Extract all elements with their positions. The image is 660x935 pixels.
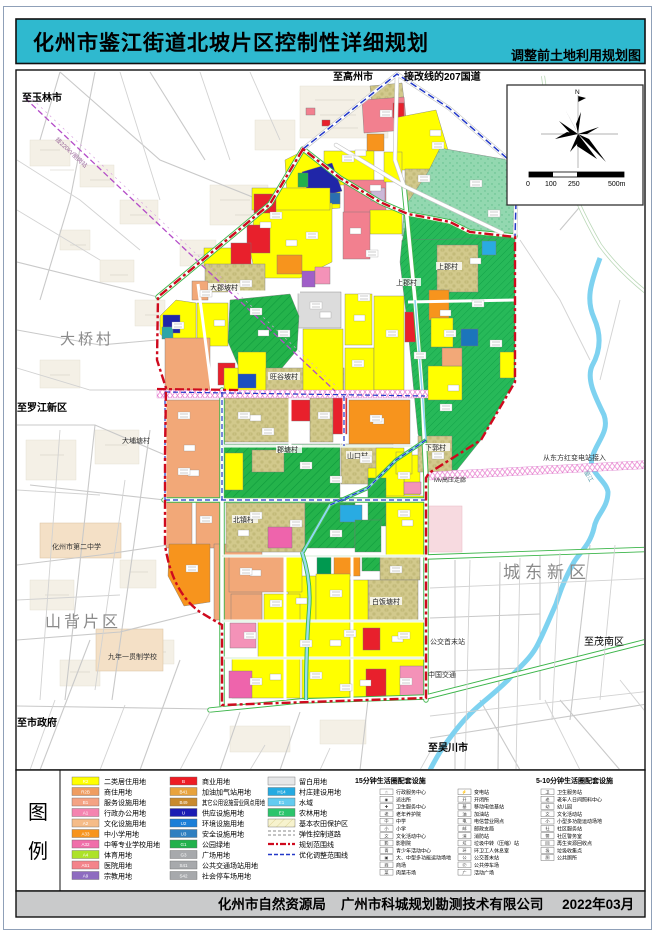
svg-text:老: 老 [384, 810, 388, 816]
svg-text:肉菜市场: 肉菜市场 [396, 869, 416, 876]
svg-text:农林用地: 农林用地 [299, 809, 327, 818]
svg-text:幼: 幼 [545, 803, 549, 810]
svg-text:B49: B49 [179, 800, 188, 805]
svg-text:活动广场: 活动广场 [474, 869, 494, 876]
svg-text:小学: 小学 [396, 826, 406, 833]
svg-text:优化调整范围线: 优化调整范围线 [299, 851, 348, 860]
svg-text:移动电信基站: 移动电信基站 [474, 804, 504, 811]
svg-text:卫生服务中心: 卫生服务中心 [396, 804, 426, 811]
svg-text:垃圾收集点: 垃圾收集点 [557, 847, 582, 854]
svg-text:500m: 500m [608, 181, 626, 188]
svg-text:垃圾中转（压缩）站: 垃圾中转（压缩）站 [474, 840, 519, 847]
svg-text:至市政府: 至市政府 [17, 716, 57, 729]
svg-text:U: U [182, 811, 185, 816]
svg-text:卫生服务站: 卫生服务站 [557, 789, 582, 796]
svg-text:15分钟生活圈配套设施: 15分钟生活圈配套设施 [355, 776, 426, 785]
svg-text:公交首末站: 公交首末站 [474, 855, 499, 862]
svg-text:100: 100 [545, 181, 557, 188]
svg-text:社: 社 [545, 825, 549, 832]
svg-text:0: 0 [526, 181, 530, 188]
svg-text:白饭塘村: 白饭塘村 [372, 597, 400, 606]
svg-text:S41: S41 [179, 863, 188, 868]
svg-text:服务设施用地: 服务设施用地 [104, 798, 146, 807]
svg-text:中学: 中学 [396, 818, 406, 825]
svg-text:▣: ▣ [385, 855, 389, 860]
svg-text:Mv高压走廊: Mv高压走廊 [434, 476, 466, 484]
svg-text:影剧院: 影剧院 [396, 840, 411, 847]
svg-text:再生资源回收点: 再生资源回收点 [557, 840, 592, 847]
svg-text:文化活动站: 文化活动站 [557, 811, 582, 818]
svg-text:G1: G1 [180, 842, 187, 847]
svg-text:弹性控制道路: 弹性控制道路 [299, 830, 341, 839]
svg-text:环卫工人休息室: 环卫工人休息室 [474, 847, 509, 854]
svg-text:派出所: 派出所 [396, 796, 411, 803]
svg-text:B: B [182, 779, 185, 784]
svg-text:公园绿地: 公园绿地 [202, 840, 230, 849]
svg-text:H14: H14 [277, 790, 286, 795]
svg-text:老年人日间照料中心: 老年人日间照料中心 [557, 796, 602, 803]
svg-text:公交首末站: 公交首末站 [430, 637, 465, 646]
svg-text:青: 青 [384, 847, 388, 854]
svg-text:社区服务站: 社区服务站 [557, 826, 582, 833]
svg-text:行政办公用地: 行政办公用地 [104, 809, 146, 818]
svg-text:开闭所: 开闭所 [474, 796, 489, 803]
svg-text:至罗江新区: 至罗江新区 [17, 401, 67, 414]
svg-text:至茂南区: 至茂南区 [584, 635, 624, 648]
svg-text:幼儿园: 幼儿园 [557, 804, 572, 811]
svg-text:R2: R2 [83, 779, 89, 784]
svg-text:A33: A33 [81, 832, 90, 837]
svg-text:化州市鉴江街道北坡片区控制性详细规划: 化州市鉴江街道北坡片区控制性详细规划 [33, 31, 429, 55]
svg-text:☆: ☆ [385, 790, 389, 795]
svg-text:公共停车场: 公共停车场 [474, 862, 499, 869]
svg-text:留白用地: 留白用地 [299, 777, 327, 786]
svg-text:250: 250 [568, 181, 580, 188]
svg-text:加油站: 加油站 [474, 811, 489, 818]
svg-text:老: 老 [545, 796, 549, 802]
svg-text:上郡村: 上郡村 [396, 278, 417, 287]
svg-text:大、中型多功能运动场地: 大、中型多功能运动场地 [396, 855, 451, 862]
svg-text:中: 中 [384, 818, 388, 825]
svg-text:U2: U2 [181, 821, 187, 826]
svg-text:体育用地: 体育用地 [104, 851, 132, 860]
svg-text:中等专业学校用地: 中等专业学校用地 [104, 840, 160, 849]
svg-text:至吴川市: 至吴川市 [428, 741, 468, 754]
svg-text:从东方红变电站接入: 从东方红变电站接入 [543, 453, 606, 462]
svg-text:变电站: 变电站 [474, 789, 489, 796]
svg-text:郡塘村: 郡塘村 [277, 445, 298, 454]
svg-text:N: N [575, 89, 580, 96]
svg-text:商住用地: 商住用地 [104, 788, 132, 797]
svg-text:E2: E2 [279, 811, 285, 816]
svg-text:行政服务中心: 行政服务中心 [396, 789, 426, 796]
svg-text:调整前土地利用规划图: 调整前土地利用规划图 [511, 48, 641, 63]
svg-text:公共厕所: 公共厕所 [557, 855, 577, 862]
svg-text:邮: 邮 [462, 825, 466, 832]
svg-text:A4: A4 [83, 853, 89, 858]
svg-text:基本农田保护区: 基本农田保护区 [299, 819, 348, 828]
svg-text:供应设施用地: 供应设施用地 [202, 809, 244, 818]
svg-text:例: 例 [28, 840, 48, 863]
svg-text:卫: 卫 [545, 790, 549, 795]
svg-text:加油加气站用地: 加油加气站用地 [202, 788, 251, 797]
svg-text:文化设施用地: 文化设施用地 [104, 819, 146, 828]
svg-text:A9: A9 [83, 874, 89, 879]
svg-text:山背片区: 山背片区 [45, 613, 121, 631]
svg-text:二类居住用地: 二类居住用地 [104, 777, 146, 786]
svg-text:消: 消 [462, 832, 466, 839]
svg-text:接改线的207国道: 接改线的207国道 [404, 70, 481, 83]
svg-text:上郡村: 上郡村 [437, 262, 458, 271]
svg-text:广场用地: 广场用地 [202, 851, 230, 860]
svg-text:电信营业网点: 电信营业网点 [474, 818, 504, 825]
svg-text:九年一贯制学校: 九年一贯制学校 [108, 652, 157, 661]
svg-text:R2B: R2B [81, 790, 90, 795]
svg-text:公共交通场站用地: 公共交通场站用地 [202, 861, 258, 870]
svg-text:B41: B41 [179, 790, 188, 795]
svg-text:社区警务室: 社区警务室 [557, 833, 582, 840]
svg-text:◉: ◉ [385, 797, 389, 802]
svg-text:宗教用地: 宗教用地 [104, 872, 132, 881]
svg-text:旺谷坡村: 旺谷坡村 [270, 372, 298, 381]
svg-text:商业用地: 商业用地 [202, 777, 230, 786]
svg-text:油: 油 [462, 810, 466, 817]
svg-text:至高州市: 至高州市 [333, 70, 373, 83]
svg-text:商: 商 [384, 862, 388, 869]
svg-text:至玉林市: 至玉林市 [22, 91, 62, 104]
svg-text:图: 图 [28, 802, 48, 824]
svg-text:社会停车场用地: 社会停车场用地 [202, 872, 251, 881]
svg-text:中国交通: 中国交通 [428, 670, 456, 679]
svg-text:医院用地: 医院用地 [104, 861, 132, 870]
svg-text:5-10分钟生活圈配套设施: 5-10分钟生活圈配套设施 [536, 776, 613, 785]
svg-text:小型多功能运动场地: 小型多功能运动场地 [557, 818, 602, 825]
svg-text:✚: ✚ [385, 804, 389, 809]
svg-text:A32: A32 [81, 842, 90, 847]
svg-text:A51: A51 [81, 863, 90, 868]
svg-text:B1: B1 [83, 800, 89, 805]
svg-text:G3: G3 [180, 853, 187, 858]
svg-text:安全设施用地: 安全设施用地 [202, 830, 244, 839]
svg-text:村庄建设用地: 村庄建设用地 [299, 788, 341, 797]
svg-text:商场: 商场 [396, 862, 406, 869]
svg-text:广: 广 [462, 869, 466, 876]
svg-text:青少年活动中心: 青少年活动中心 [396, 847, 431, 854]
svg-text:U3: U3 [181, 832, 187, 837]
svg-text:S42: S42 [179, 874, 188, 879]
svg-text:化州市自然资源局 广州市科城规划勘测技术有限公司: 化州市自然资源局 广州市科城规划勘测技术有限公司 2022年03月 [218, 896, 634, 912]
svg-text:化州市第二中学: 化州市第二中学 [52, 542, 101, 551]
svg-text:大埔塘村: 大埔塘村 [122, 436, 150, 445]
svg-text:大桥村: 大桥村 [60, 331, 114, 348]
svg-text:老年养护院: 老年养护院 [396, 811, 421, 818]
svg-text:E1: E1 [279, 800, 285, 805]
svg-text:环境设施用地: 环境设施用地 [202, 819, 244, 828]
svg-text:其它公用设施营业网点用地: 其它公用设施营业网点用地 [202, 798, 265, 807]
svg-text:文化活动中心: 文化活动中心 [396, 833, 426, 840]
svg-text:邮政支局: 邮政支局 [474, 826, 494, 833]
svg-text:规划范围线: 规划范围线 [299, 840, 334, 849]
svg-text:中小学用地: 中小学用地 [104, 830, 139, 839]
svg-text:A1: A1 [83, 811, 89, 816]
svg-text:城东新区: 城东新区 [503, 563, 591, 582]
svg-text:下郭村: 下郭村 [425, 443, 446, 452]
svg-text:A2: A2 [83, 821, 89, 826]
svg-text:水域: 水域 [299, 798, 313, 807]
svg-text:消防站: 消防站 [474, 833, 489, 840]
svg-text:大郡坡村: 大郡坡村 [210, 283, 238, 292]
